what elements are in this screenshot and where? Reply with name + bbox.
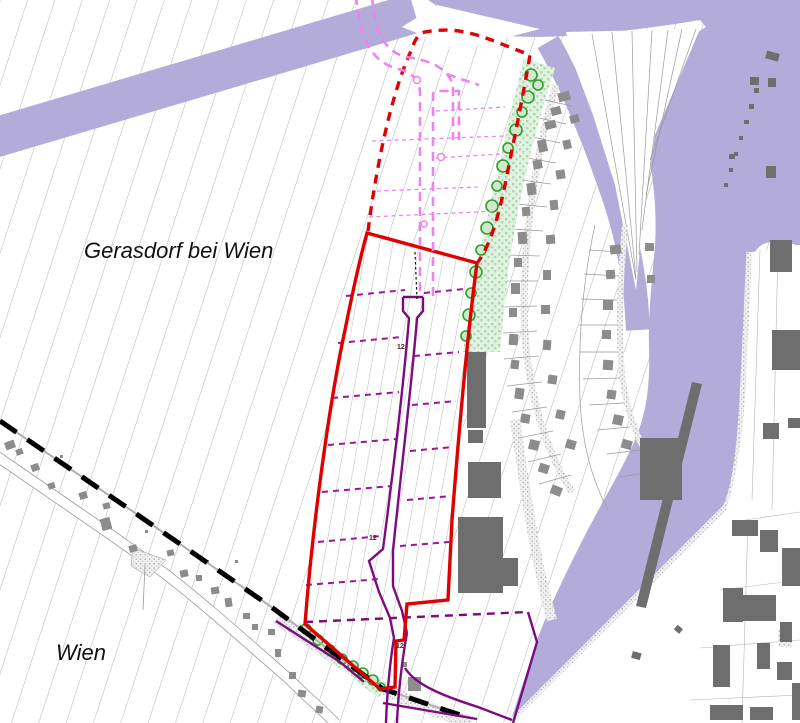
long-hall-building bbox=[467, 352, 486, 428]
zoning-plan-map: Gerasdorf bei Wien Wien 12 12 12 bbox=[0, 0, 800, 723]
road-width-marker-1: 12 bbox=[397, 344, 405, 351]
warehouse-building bbox=[468, 462, 501, 498]
rail-warehouse bbox=[640, 438, 682, 500]
map-canvas: Gerasdorf bei Wien Wien 12 12 12 bbox=[0, 0, 800, 723]
road-width-marker-2: 12 bbox=[369, 535, 377, 542]
road-width-marker-3: 12 bbox=[396, 643, 404, 650]
label-wien: Wien bbox=[56, 640, 106, 665]
label-gerasdorf: Gerasdorf bei Wien bbox=[84, 238, 273, 263]
